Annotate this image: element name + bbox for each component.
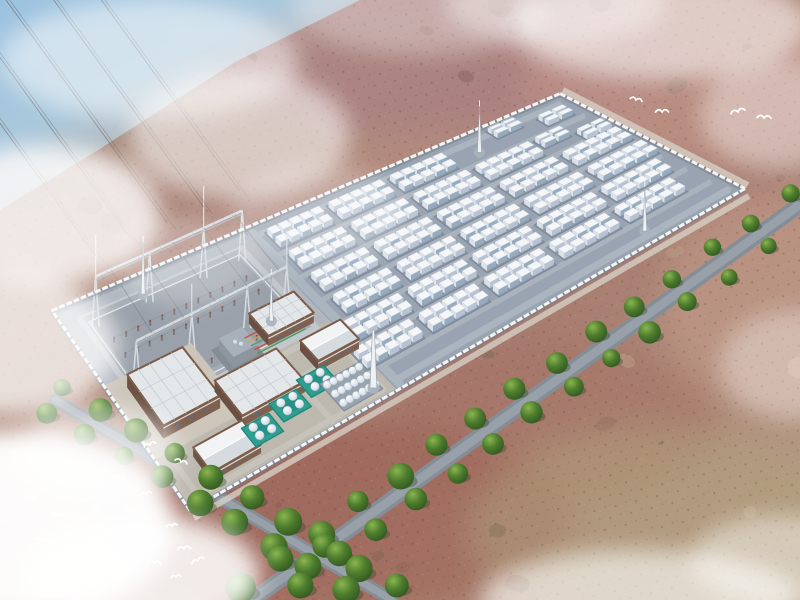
tree <box>221 509 248 536</box>
tree <box>198 465 223 490</box>
skid-tank <box>304 375 313 384</box>
insulator <box>149 341 151 343</box>
cloud <box>230 165 410 265</box>
insulator <box>124 352 126 354</box>
switchgear <box>173 310 175 315</box>
tree <box>638 321 661 344</box>
tree <box>663 270 681 288</box>
insulator <box>125 331 127 333</box>
terrain-blotch <box>489 524 506 538</box>
tree <box>520 401 542 423</box>
insulator <box>161 335 163 337</box>
building-window <box>222 470 225 473</box>
building-window <box>256 412 259 415</box>
switchgear <box>185 305 187 310</box>
skid-tank <box>276 398 285 407</box>
tree <box>364 518 387 541</box>
switchgear <box>258 290 260 295</box>
switchgear <box>125 333 127 338</box>
insulator <box>149 320 151 322</box>
tree <box>425 434 447 456</box>
tree <box>464 408 486 430</box>
tree <box>782 184 800 202</box>
tree <box>602 349 620 367</box>
tree <box>761 238 777 254</box>
transformer-bushing <box>233 340 237 344</box>
tree <box>274 508 302 536</box>
building-window <box>190 416 193 419</box>
switchgear <box>234 302 236 307</box>
cloud <box>0 0 300 120</box>
tree <box>240 485 264 509</box>
cloud <box>10 407 180 503</box>
insulator <box>258 289 260 291</box>
skid-tank <box>288 392 297 401</box>
insulator <box>173 329 175 331</box>
switchgear <box>125 354 127 359</box>
switchgear <box>209 313 211 318</box>
tree <box>448 463 469 484</box>
tree <box>564 377 584 397</box>
insulator <box>209 312 211 314</box>
storage-tank <box>355 363 363 371</box>
skid-tank <box>311 382 320 391</box>
skid-tank <box>255 431 264 440</box>
switchgear <box>197 319 199 324</box>
switchgear <box>221 307 223 312</box>
building-window <box>347 349 350 352</box>
building-window <box>337 354 340 357</box>
switchgear <box>185 325 187 330</box>
switchgear <box>161 316 163 321</box>
building-window <box>247 455 250 458</box>
tree <box>721 269 738 286</box>
building-window <box>204 409 207 412</box>
skid-tank <box>261 416 270 425</box>
tree <box>742 215 760 233</box>
switchgear <box>161 336 163 341</box>
building-window <box>327 360 330 363</box>
tree <box>405 488 428 511</box>
insulator <box>137 325 139 327</box>
tree <box>287 572 313 598</box>
tree <box>267 546 293 572</box>
tree <box>385 574 409 598</box>
insulator <box>173 309 175 311</box>
insulator <box>185 323 187 325</box>
building-window <box>176 424 179 427</box>
tree <box>503 378 525 400</box>
tree <box>546 352 568 374</box>
insulator <box>197 317 199 319</box>
rendering-stage <box>0 0 800 600</box>
switchgear <box>149 342 151 347</box>
building-window <box>235 463 238 466</box>
insulator <box>233 300 235 302</box>
skid-tank <box>267 424 276 433</box>
transformer-bushing <box>239 342 243 346</box>
skid-tank <box>283 406 292 415</box>
tree <box>678 292 697 311</box>
building-window <box>289 329 292 332</box>
skid-tank <box>249 423 258 432</box>
skid-tank <box>316 368 325 377</box>
building-window <box>301 323 304 326</box>
tree <box>388 463 415 490</box>
insulator <box>211 358 213 360</box>
tree <box>187 490 214 517</box>
switchgear <box>173 331 175 336</box>
skid-tank <box>295 399 304 408</box>
tree <box>624 297 645 318</box>
switchgear <box>149 321 151 326</box>
insulator <box>221 306 223 308</box>
tree <box>585 321 607 343</box>
tree <box>482 433 504 455</box>
tree <box>347 491 368 512</box>
switchgear <box>211 359 213 364</box>
insulator <box>161 314 163 316</box>
scene-rendering <box>0 0 800 600</box>
switchgear <box>137 327 139 332</box>
tree <box>704 239 721 256</box>
storage-tank <box>363 372 371 380</box>
building-window <box>278 335 281 338</box>
